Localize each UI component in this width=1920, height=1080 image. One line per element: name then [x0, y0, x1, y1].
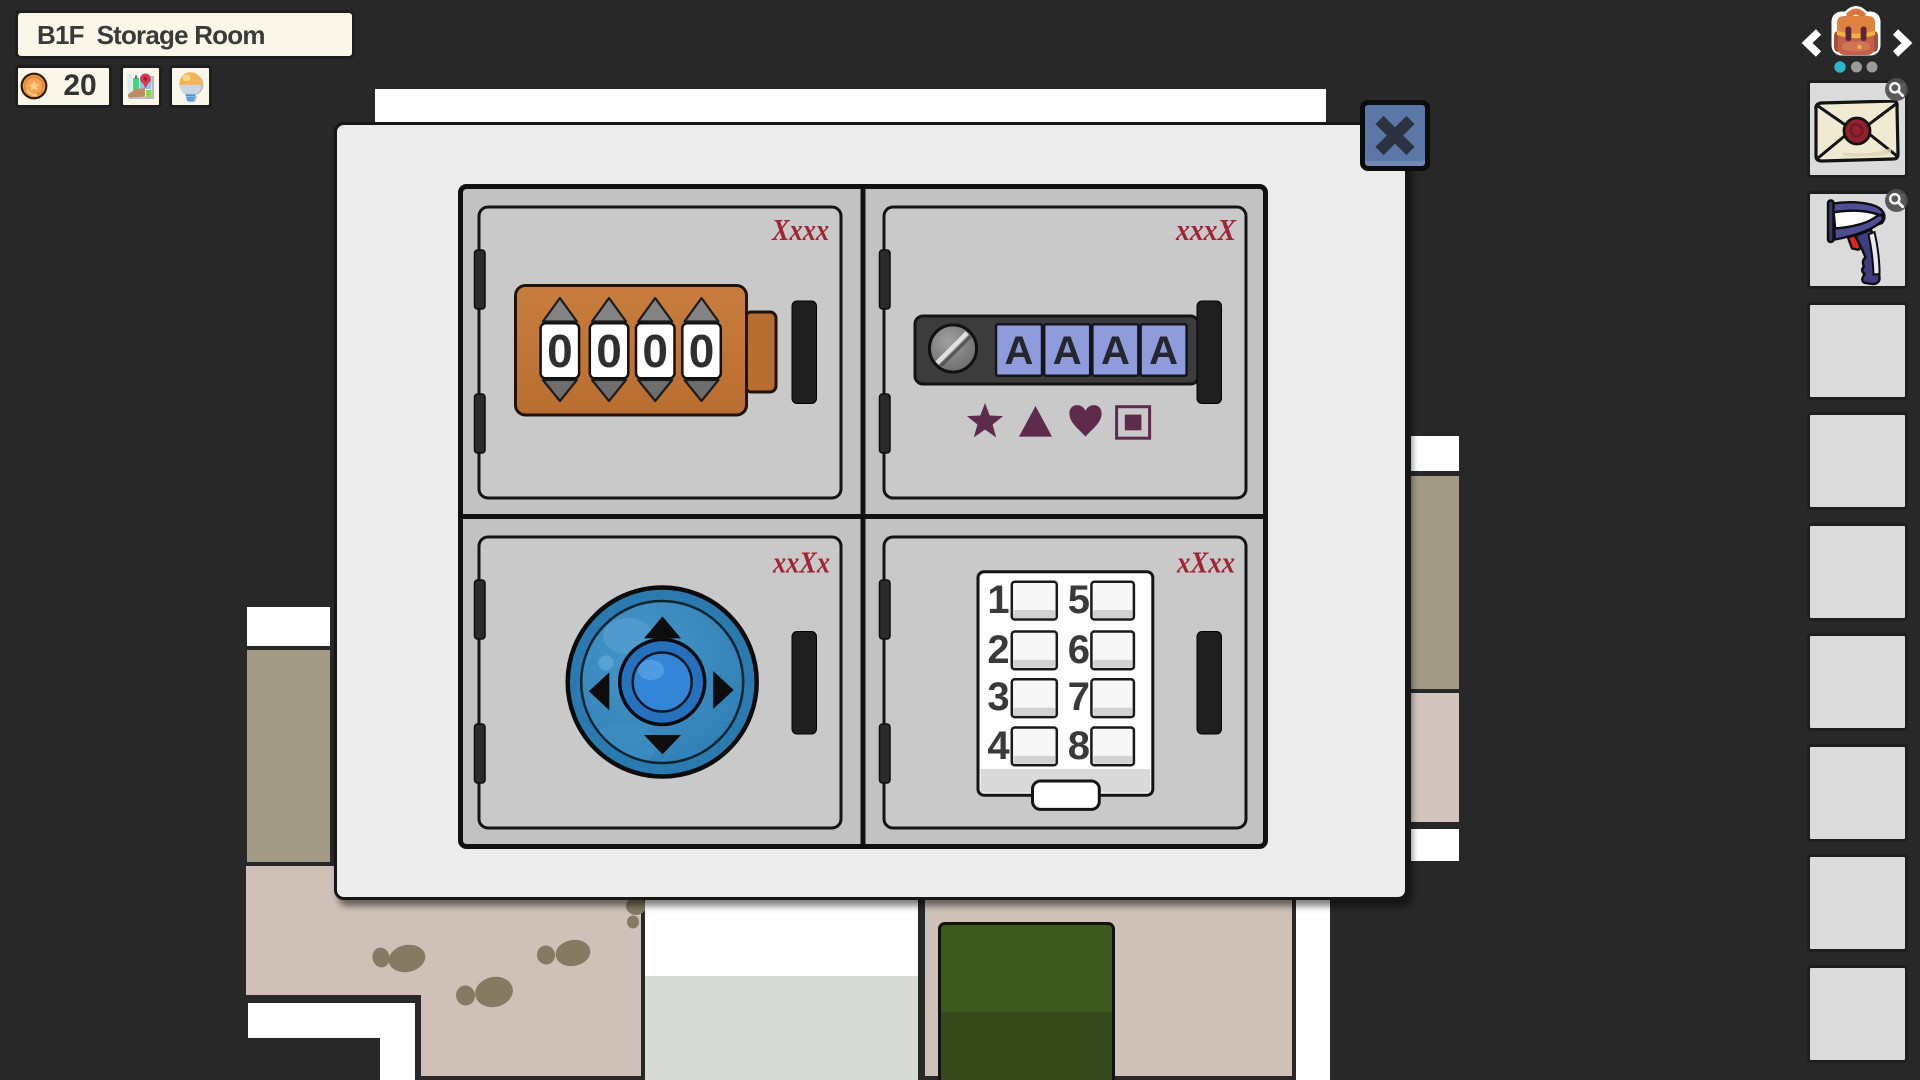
svg-text:6: 6 — [1068, 628, 1090, 672]
svg-text:7: 7 — [1068, 675, 1090, 719]
svg-text:0: 0 — [642, 325, 668, 377]
svg-text:4: 4 — [987, 724, 1010, 768]
svg-text:A: A — [1149, 329, 1178, 373]
svg-text:A: A — [1101, 329, 1130, 373]
svg-text:A: A — [1053, 329, 1082, 373]
svg-text:3: 3 — [987, 675, 1009, 719]
svg-text:Xxxx: Xxxx — [771, 212, 829, 247]
svg-text:0: 0 — [596, 325, 622, 377]
svg-text:5: 5 — [1068, 578, 1090, 622]
svg-text:xXxx: xXxx — [1176, 545, 1235, 580]
svg-text:0: 0 — [547, 325, 573, 377]
svg-text:xxXx: xxXx — [772, 545, 830, 580]
svg-text:0: 0 — [689, 325, 715, 377]
svg-text:1: 1 — [987, 578, 1009, 622]
svg-text:xxxX: xxxX — [1175, 212, 1237, 247]
svg-text:A: A — [1005, 329, 1034, 373]
svg-text:8: 8 — [1068, 724, 1090, 768]
svg-text:2: 2 — [987, 628, 1009, 672]
